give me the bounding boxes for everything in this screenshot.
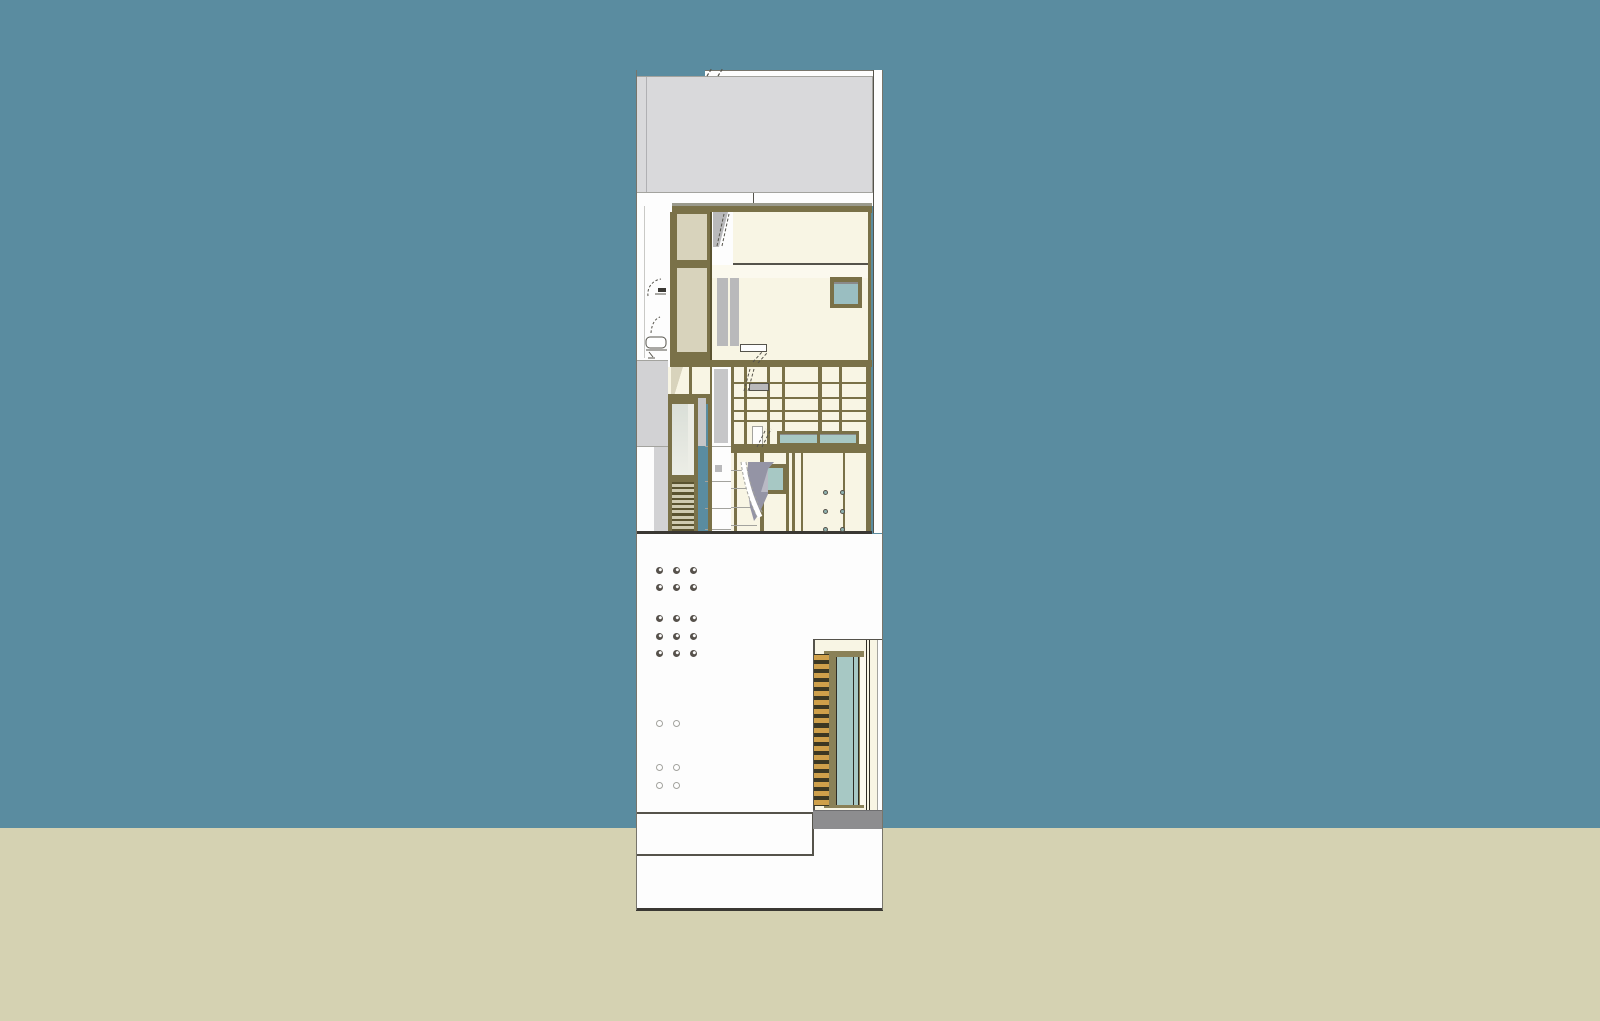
model-viewport[interactable] [0, 0, 1600, 1021]
dot-teal [840, 490, 845, 495]
dot-teal [840, 509, 845, 514]
dot-teal [823, 509, 828, 514]
dot-teal [823, 527, 828, 532]
stair-dots-layer [0, 0, 1600, 1021]
dot-teal [840, 527, 845, 532]
dot-teal [823, 490, 828, 495]
